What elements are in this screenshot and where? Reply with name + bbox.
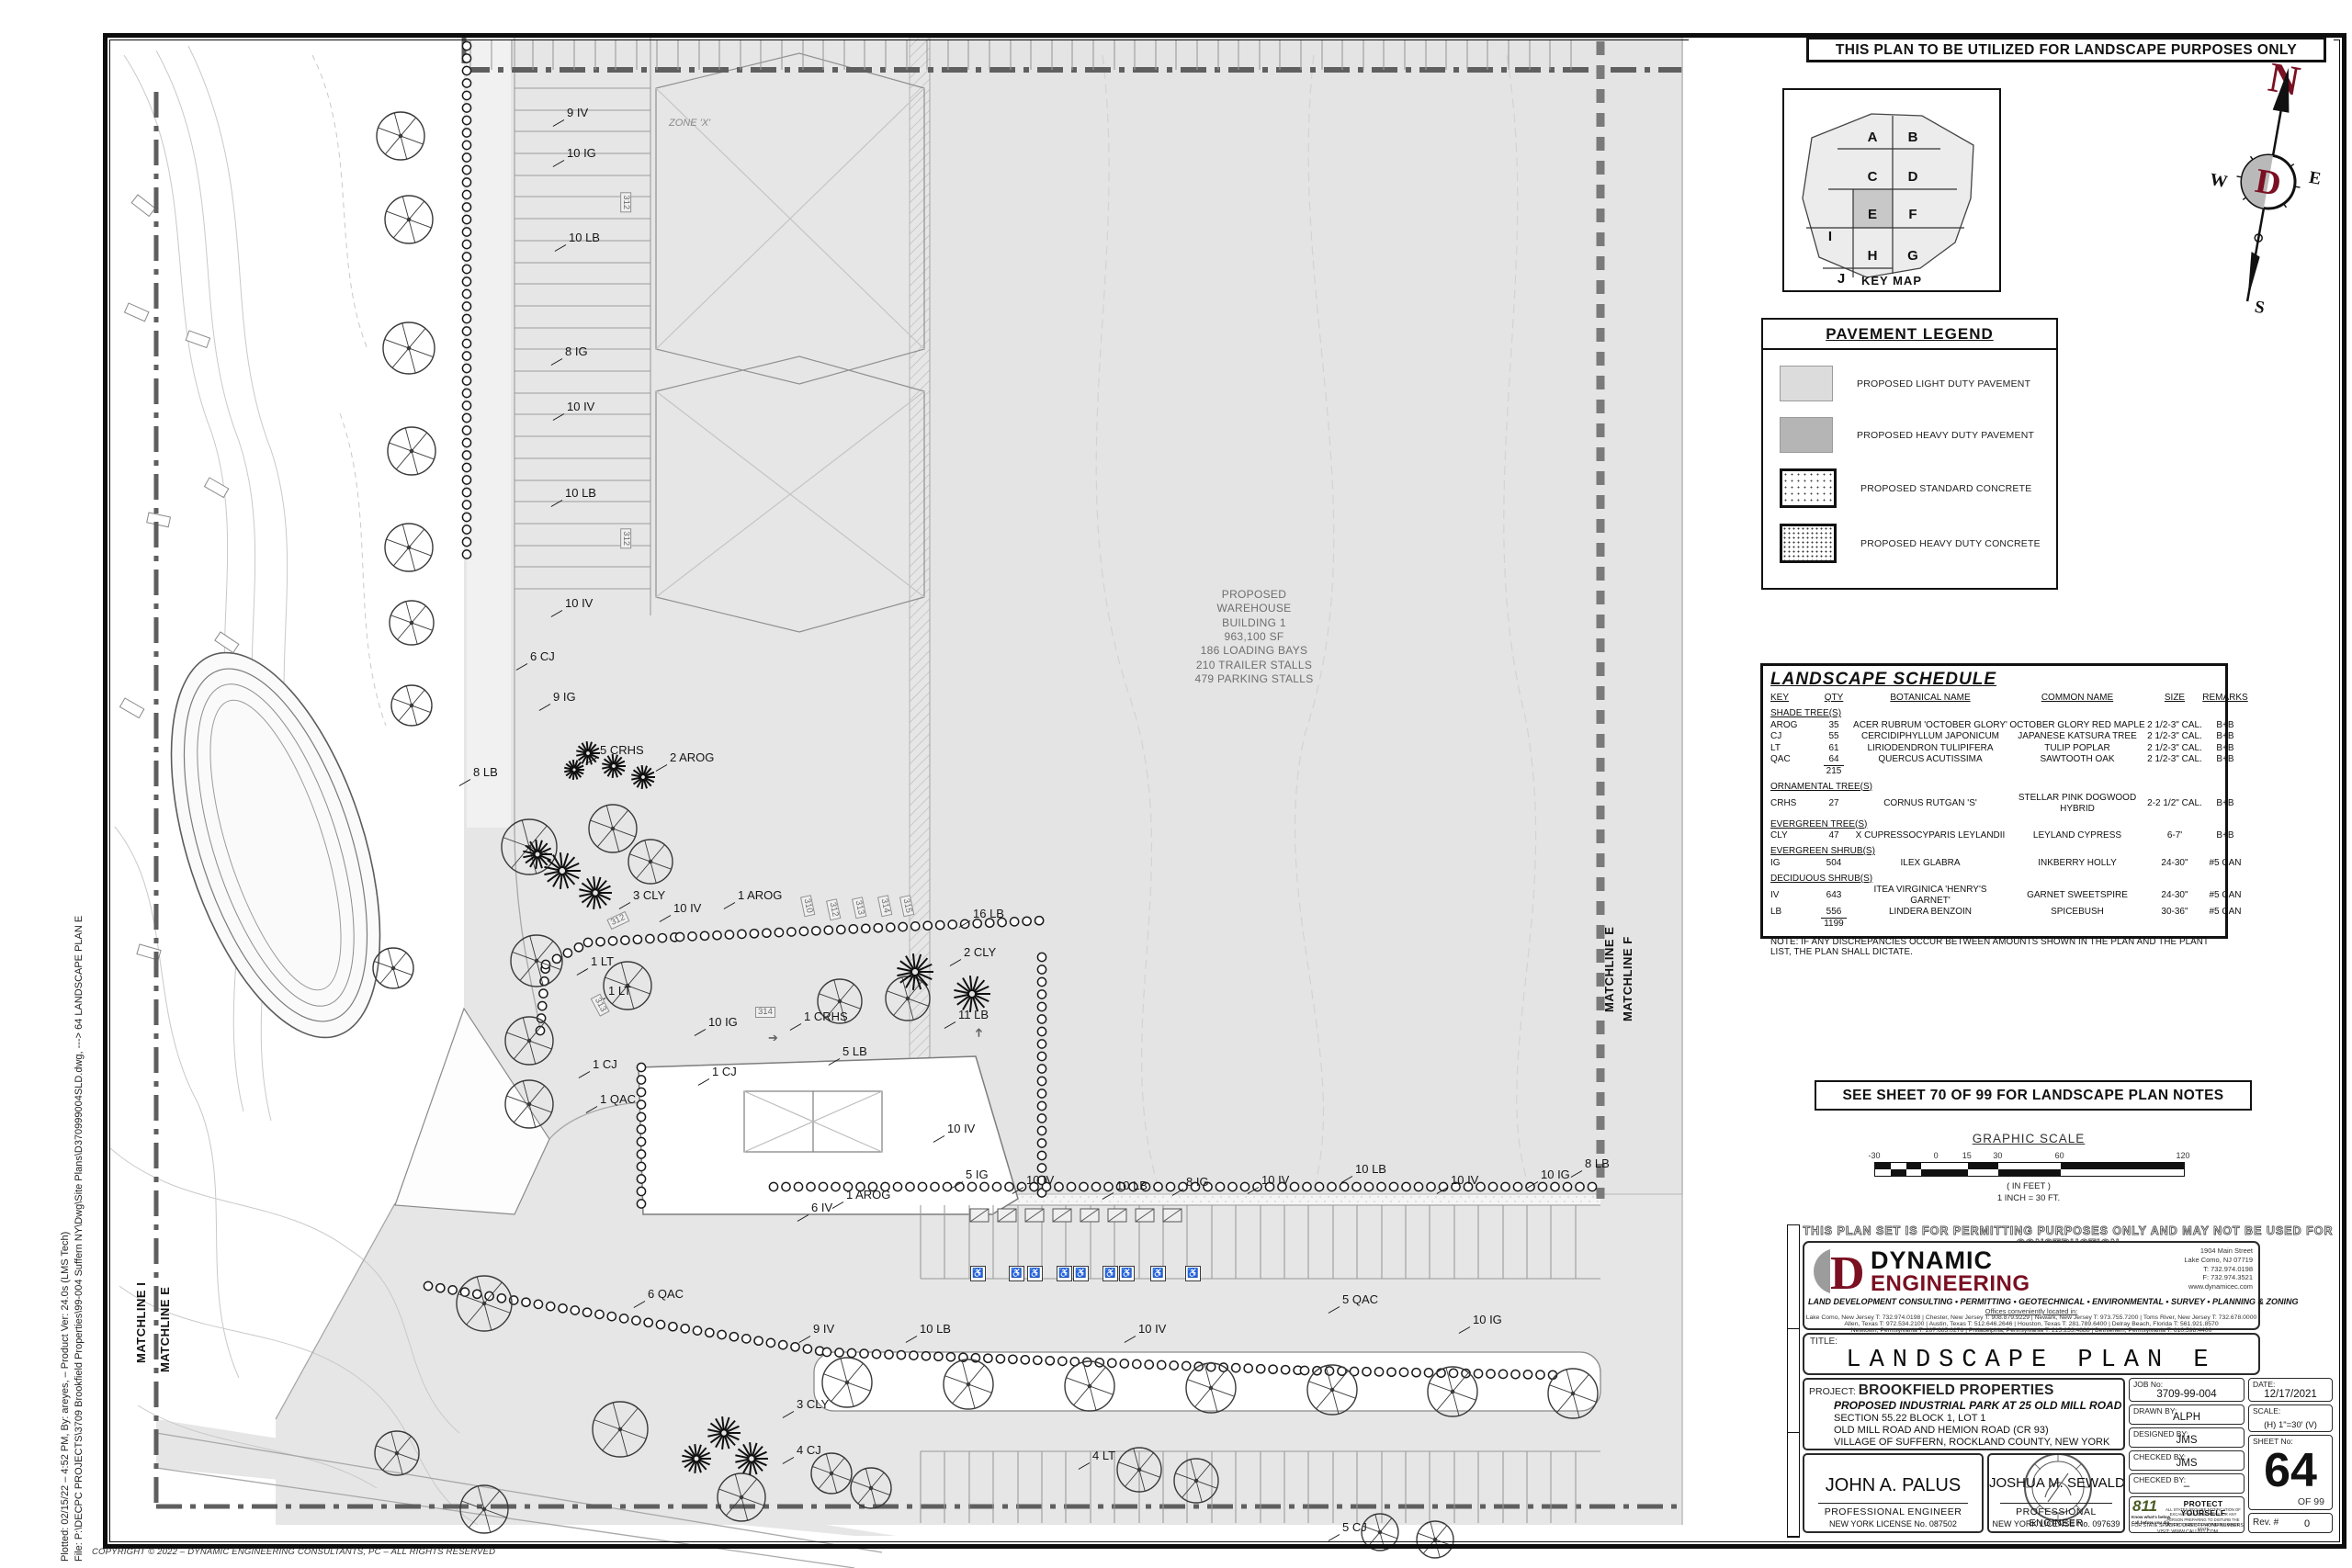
landscape-schedule-title: LANDSCAPE SCHEDULE xyxy=(1770,670,2218,690)
plant-label: 8 IG xyxy=(1170,1176,1209,1188)
job-number: 3709-99-004 xyxy=(2130,1389,2244,1400)
plant-label: 1 AROG xyxy=(722,889,782,901)
pavement-legend-row: PROPOSED LIGHT DUTY PAVEMENT xyxy=(1780,366,2056,401)
svg-text:G: G xyxy=(1907,248,1918,264)
plant-label: 10 IV xyxy=(551,400,594,412)
schedule-row: IV643ITEA VIRGINICA 'HENRY'S GARNET'GARN… xyxy=(1770,885,2248,907)
call-811-panel: 811 Know what's below.Call before you di… xyxy=(2129,1496,2245,1533)
plant-label: 10 IV xyxy=(932,1122,975,1134)
pavement-arrow-icon: ➔ xyxy=(971,1028,986,1038)
project-panel: PROJECT: BROOKFIELD PROPERTIES PROPOSED … xyxy=(1803,1378,2125,1450)
plant-label: 10 IV xyxy=(1123,1323,1166,1335)
plot-info-line1: Plotted: 02/15/22 – 4:52 PM, By: areyes,… xyxy=(59,852,73,1562)
landscape-schedule: LANDSCAPE SCHEDULE KEYQTYBOTANICAL NAMEC… xyxy=(1760,663,2228,939)
graphic-scale-bar xyxy=(1874,1162,2185,1177)
call-811-url: WWW.CALL811.COM xyxy=(2171,1529,2218,1535)
plant-label: 10 IV xyxy=(658,902,701,914)
plant-label: 2 CLY xyxy=(948,946,996,958)
matchline-label: MATCHLINE E xyxy=(158,1287,172,1372)
sheet-number-cell: SHEET No: 64 OF 99 xyxy=(2248,1435,2333,1510)
firm-logo-panel: D DYNAMIC ENGINEERING 1904 Main StreetLa… xyxy=(1803,1241,2260,1330)
pavement-swatch-concrete xyxy=(1780,468,1837,508)
pavement-legend-title: PAVEMENT LEGEND xyxy=(1763,320,2056,350)
plant-label: 8 IG xyxy=(549,345,588,357)
handicap-stall-icon: ♿ xyxy=(1102,1266,1118,1281)
sheet-title: LANDSCAPE PLAN E xyxy=(1804,1347,2258,1374)
plant-label: 10 IG xyxy=(1457,1314,1502,1325)
project-name: BROOKFIELD PROPERTIES xyxy=(1859,1382,2054,1398)
graphic-scale-ratio: 1 INCH = 30 FT. xyxy=(1874,1193,2183,1203)
sheet-date: 12/17/2021 xyxy=(2249,1389,2332,1400)
svg-text:E: E xyxy=(1868,207,1877,222)
matchline-label: MATCHLINE E xyxy=(1602,927,1616,1012)
svg-text:I: I xyxy=(1828,229,1832,244)
checked-by: JMS xyxy=(2130,1458,2244,1469)
engineer1-license: NEW YORK LICENSE No. 087502 xyxy=(1804,1519,1982,1529)
dynamic-logo-icon: D xyxy=(1812,1247,1865,1295)
pavement-swatch-heavy xyxy=(1780,417,1833,453)
call-811-visit: FOR STATE SPECIFIC DIRECT PHONE NUMBERS … xyxy=(2131,1523,2244,1536)
sheet-title-panel: TITLE: LANDSCAPE PLAN E xyxy=(1803,1333,2260,1375)
schedule-row: LB556LINDERA BENZOINSPICEBUSH30-36"#5 CA… xyxy=(1770,907,2248,919)
plant-label: 10 IV xyxy=(549,597,593,609)
graphic-scale-title: GRAPHIC SCALE xyxy=(1874,1132,2183,1145)
plant-label: 10 IG xyxy=(551,147,596,159)
key-map: ABCDEFIHGJ KEY MAP xyxy=(1782,88,2001,292)
plant-label: 1 LT xyxy=(575,955,614,967)
plant-label: 5 CJ xyxy=(1327,1521,1367,1533)
svg-text:B: B xyxy=(1908,130,1918,145)
call-811-icon: 811 xyxy=(2132,1498,2157,1514)
schedule-row: QAC64QUERCUS ACUTISSIMASAWTOOTH OAK2 1/2… xyxy=(1770,754,2248,766)
sheet-of: OF 99 xyxy=(2298,1496,2324,1507)
plant-label: 1 AROG xyxy=(831,1189,890,1201)
plant-label: 6 IV xyxy=(796,1201,832,1213)
plant-label: 1 CRHS xyxy=(788,1010,848,1022)
project-subtitle: PROPOSED INDUSTRIAL PARK AT 25 OLD MILL … xyxy=(1834,1399,2121,1412)
drawn-by: ALPH xyxy=(2130,1412,2244,1423)
plant-label: 9 IG xyxy=(537,691,576,703)
plant-label: 10 LB xyxy=(1340,1163,1386,1175)
title-label: TITLE: xyxy=(1810,1337,1837,1347)
plant-label: 1 CJ xyxy=(696,1066,737,1077)
svg-text:E: E xyxy=(2308,168,2323,189)
pavement-legend-row: PROPOSED STANDARD CONCRETE xyxy=(1780,468,2056,508)
svg-text:W: W xyxy=(2209,170,2229,192)
plot-info: Plotted: 02/15/22 – 4:52 PM, By: areyes,… xyxy=(59,852,86,1562)
svg-text:D: D xyxy=(1908,169,1918,185)
svg-text:C: C xyxy=(1868,169,1878,185)
key-map-title: KEY MAP xyxy=(1784,274,1999,288)
designed-by: JMS xyxy=(2130,1435,2244,1446)
handicap-stall-icon: ♿ xyxy=(1057,1266,1072,1281)
building-label: PROPOSEDWAREHOUSEBUILDING 1963,100 SF186… xyxy=(1185,588,1323,687)
engineer2-panel: JOSHUA M. SEWALD PROFESSIONAL ENGINEER N… xyxy=(1987,1453,2125,1533)
firm-tagline: LAND DEVELOPMENT CONSULTING • PERMITTING… xyxy=(1808,1297,2258,1306)
checked-by2-cell: CHECKED BY:– xyxy=(2129,1473,2245,1494)
svg-text:S: S xyxy=(2253,298,2266,315)
plant-label: 9 IV xyxy=(797,1323,834,1335)
plant-label: 1 CJ xyxy=(577,1058,617,1070)
engineer1-panel: JOHN A. PALUS PROFESSIONAL ENGINEER NEW … xyxy=(1803,1453,1984,1533)
sheet-number: 64 xyxy=(2249,1447,2332,1495)
plant-label: 5 QAC xyxy=(1327,1293,1378,1305)
drawn-by-cell: DRAWN BY:ALPH xyxy=(2129,1404,2245,1425)
engineer2-license: NEW YORK LICENSE No. 097639 xyxy=(1989,1519,2123,1529)
plant-label: 8 LB xyxy=(458,766,498,778)
engineer1-name: JOHN A. PALUS xyxy=(1804,1475,1982,1496)
engineer1-role: PROFESSIONAL ENGINEER xyxy=(1804,1506,1982,1517)
plant-label: 8 LB xyxy=(1569,1157,1610,1169)
plant-label: 4 LT xyxy=(1077,1450,1115,1461)
handicap-stall-icon: ♿ xyxy=(1150,1266,1166,1281)
job-number-cell: JOB No:3709-99-004 xyxy=(2129,1378,2245,1402)
plant-label: 3 CLY xyxy=(617,889,665,901)
project-line1: SECTION 55.22 BLOCK 1, LOT 1 xyxy=(1834,1413,1985,1424)
sheet-scale: (H) 1"=30' (V) xyxy=(2249,1420,2332,1430)
contour-tag: 312 xyxy=(620,192,631,212)
firm-address: 1904 Main StreetLake Como, NJ 07719 T: 7… xyxy=(2184,1247,2253,1292)
plant-label: 3 CLY xyxy=(781,1398,829,1410)
pavement-swatch-light xyxy=(1780,366,1833,401)
revision-cell: Rev. #0 xyxy=(2248,1513,2333,1533)
matchline-label: MATCHLINE I xyxy=(134,1282,148,1363)
svg-text:H: H xyxy=(1868,248,1878,264)
landscape-schedule-table: KEYQTYBOTANICAL NAMECOMMON NAMESIZEREMAR… xyxy=(1770,692,2248,930)
date-cell: DATE:12/17/2021 xyxy=(2248,1378,2333,1402)
offices-line2: Allen, Texas T: 972.534.2100 | Austin, T… xyxy=(1804,1321,2258,1327)
graphic-scale-ticks: -300153060120 xyxy=(1874,1151,2183,1162)
project-label: PROJECT: xyxy=(1809,1386,1856,1397)
designed-by-cell: DESIGNED BY:JMS xyxy=(2129,1427,2245,1448)
plant-label: 10 IG xyxy=(1525,1168,1570,1180)
plant-label: 11 LB xyxy=(943,1009,989,1021)
flood-zone-label: ZONE 'X' xyxy=(669,118,710,129)
plant-label: 5 IG xyxy=(950,1168,989,1180)
handicap-stall-icon: ♿ xyxy=(1027,1266,1043,1281)
plant-label: 4 CJ xyxy=(781,1444,821,1456)
key-map-graphic: ABCDEFIHGJ xyxy=(1784,90,1999,290)
plant-label: 2 AROG xyxy=(654,751,714,763)
plant-label: 5 CRHS xyxy=(584,744,644,756)
north-arrow-icon: N D E W S xyxy=(2196,26,2341,315)
handicap-stall-icon: ♿ xyxy=(1185,1266,1201,1281)
matchline-label: MATCHLINE F xyxy=(1621,936,1634,1021)
graphic-scale-unit: ( IN FEET ) xyxy=(1874,1181,2183,1191)
svg-text:D: D xyxy=(1830,1247,1865,1295)
copyright-note: COPYRIGHT © 2022 – DYNAMIC ENGINEERING C… xyxy=(92,1547,495,1557)
plant-label: 9 IV xyxy=(551,107,588,118)
plant-label: 10 LB xyxy=(553,231,600,243)
title-block: THIS PLAN SET IS FOR PERMITTING PURPOSES… xyxy=(1800,1224,2336,1536)
plant-label: 10 IV xyxy=(1246,1174,1289,1186)
schedule-note: NOTE: IF ANY DISCREPANCIES OCCUR BETWEEN… xyxy=(1770,937,2218,957)
schedule-row: CJ55CERCIDIPHYLLUM JAPONICUMJAPANESE KAT… xyxy=(1770,731,2248,743)
handicap-stall-icon: ♿ xyxy=(970,1266,986,1281)
graphic-scale: GRAPHIC SCALE -300153060120 ( IN FEET ) … xyxy=(1874,1132,2183,1203)
plant-label: 10 IG xyxy=(693,1016,738,1028)
pavement-legend-row: PROPOSED HEAVY DUTY PAVEMENT xyxy=(1780,417,2056,453)
project-line3: VILLAGE OF SUFFERN, ROCKLAND COUNTY, NEW… xyxy=(1834,1437,2109,1448)
schedule-row: AROG35ACER RUBRUM 'OCTOBER GLORY'OCTOBER… xyxy=(1770,719,2248,731)
project-line2: OLD MILL ROAD AND HEMION ROAD (CR 93) xyxy=(1834,1425,2049,1436)
schedule-row: CRHS27CORNUS RUTGAN 'S'STELLAR PINK DOGW… xyxy=(1770,793,2248,815)
plant-label: 1 QAC xyxy=(584,1093,636,1105)
schedule-row: LT61LIRIODENDRON TULIPIFERATULIP POPLAR2… xyxy=(1770,742,2248,754)
schedule-row: CLY47X CUPRESSOCYPARIS LEYLANDIILEYLAND … xyxy=(1770,830,2248,842)
handicap-stall-icon: ♿ xyxy=(1009,1266,1024,1281)
plant-label: 10 IV xyxy=(1435,1174,1478,1186)
svg-text:F: F xyxy=(1908,207,1917,222)
revision-number: 0 xyxy=(2282,1518,2332,1529)
scale-cell: SCALE:(H) 1"=30' (V) xyxy=(2248,1404,2333,1432)
plant-label: 6 QAC xyxy=(632,1288,684,1300)
plant-label: 10 LB xyxy=(904,1323,951,1335)
handicap-stall-icon: ♿ xyxy=(1073,1266,1089,1281)
schedule-row: IG504ILEX GLABRAINKBERRY HOLLY24-30"#5 C… xyxy=(1770,857,2248,869)
plant-label: 6 CJ xyxy=(514,650,555,662)
handicap-stall-icon: ♿ xyxy=(1119,1266,1135,1281)
checked-by-cell: CHECKED BY:JMS xyxy=(2129,1450,2245,1471)
pavement-swatch-heavy-concrete xyxy=(1780,524,1837,563)
plant-label: 16 LB xyxy=(957,908,1004,919)
contour-tag: 312 xyxy=(620,528,631,548)
pavement-legend-row: PROPOSED HEAVY DUTY CONCRETE xyxy=(1780,524,2056,563)
offices-line1: Lake Como, New Jersey T: 732.974.0198 | … xyxy=(1804,1314,2258,1321)
plant-label: 10 LB xyxy=(1101,1179,1148,1191)
revision-strip xyxy=(1787,1224,1800,1538)
pavement-arrow-icon: ➔ xyxy=(768,1031,778,1045)
firm-name-bottom: ENGINEERING xyxy=(1871,1271,2030,1297)
see-sheet-notes-banner: SEE SHEET 70 OF 99 FOR LANDSCAPE PLAN NO… xyxy=(1815,1080,2252,1111)
plant-label: 10 IV xyxy=(1011,1174,1054,1186)
contour-tag: 314 xyxy=(755,1007,775,1018)
engineer2-name: JOSHUA M. SEWALD xyxy=(1989,1475,2123,1491)
plant-label: 5 LB xyxy=(827,1045,867,1057)
svg-text:A: A xyxy=(1868,130,1878,145)
plot-info-line2: File: P:\DECPC PROJECTS\3709 Brookfield … xyxy=(73,852,86,1562)
pavement-legend: PAVEMENT LEGEND PROPOSED LIGHT DUTY PAVE… xyxy=(1761,318,2058,590)
checked-by2: – xyxy=(2130,1481,2244,1492)
plant-label: 10 LB xyxy=(549,487,596,499)
